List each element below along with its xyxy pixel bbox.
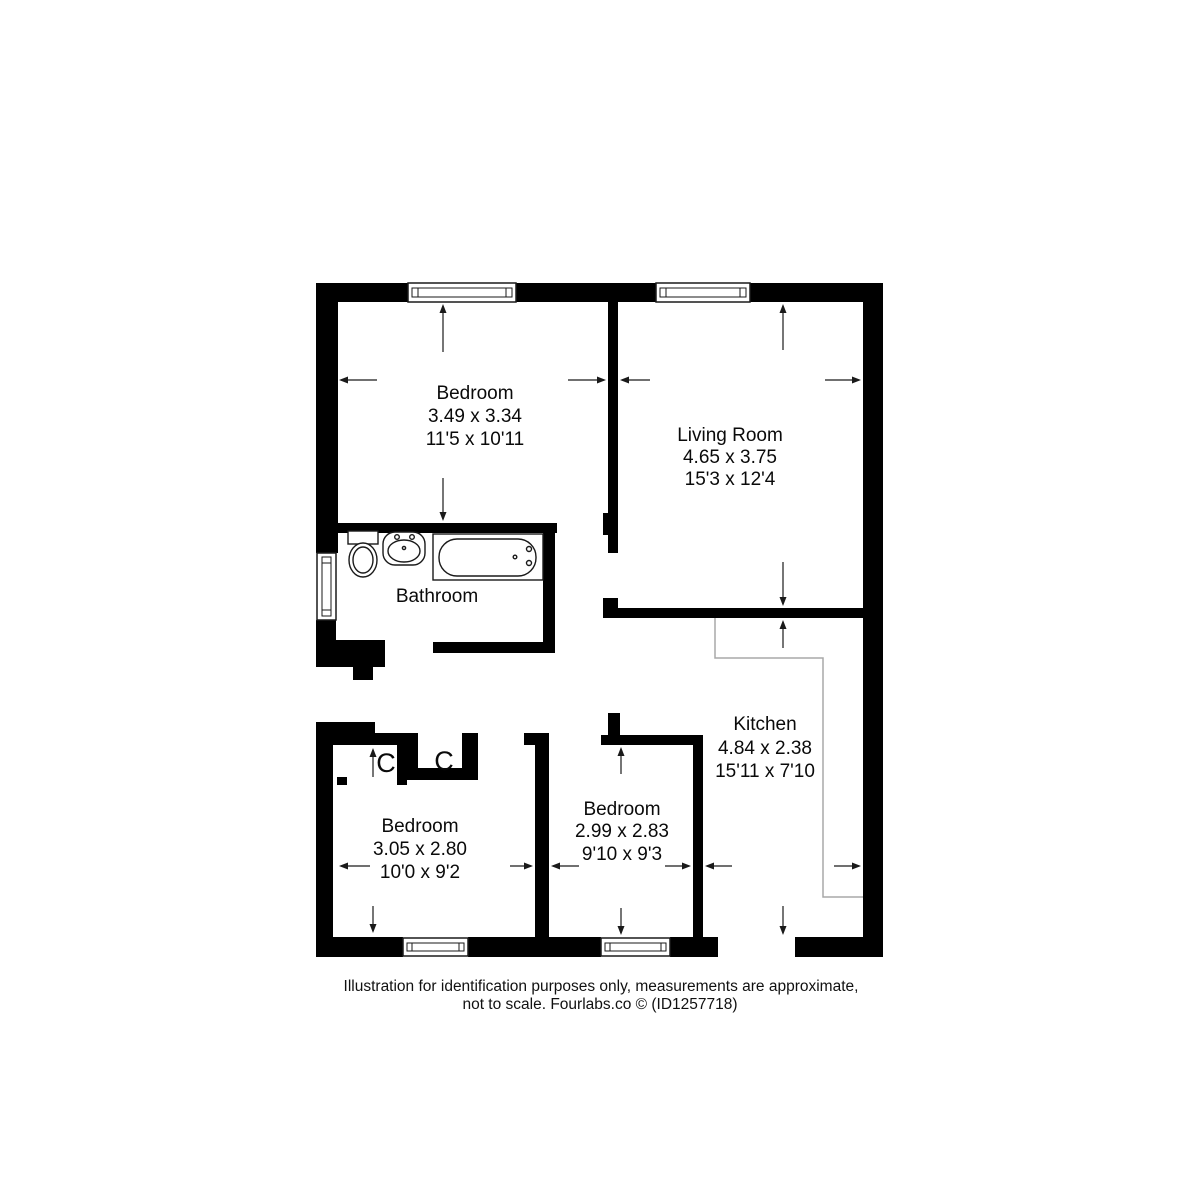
window-top-right <box>656 283 750 302</box>
kitchen-imperial: 15'11 x 7'10 <box>715 761 815 782</box>
wall-bottom-3 <box>670 937 718 957</box>
wall-right <box>863 283 883 957</box>
wall-bathroom-bottom <box>433 642 553 653</box>
bedroom-left-name: Bedroom <box>381 816 458 837</box>
wall-closet-top <box>316 733 418 745</box>
wall-step-block <box>353 667 373 680</box>
wall-bottom-4 <box>795 937 863 957</box>
living-room-name: Living Room <box>677 425 783 446</box>
kitchen-name: Kitchen <box>733 714 796 735</box>
sink-icon <box>383 532 425 565</box>
bathtub-icon <box>433 534 543 580</box>
bedroom-middle-name: Bedroom <box>583 799 660 820</box>
wall-closet-left-right <box>397 745 407 785</box>
window-top-left <box>408 283 516 302</box>
wall-mid-bedrooms <box>535 745 549 937</box>
closet-right-label: C <box>434 746 454 776</box>
wall-kitchen-top <box>603 608 863 618</box>
window-bottom-middle <box>601 938 670 956</box>
bathroom-name: Bathroom <box>396 586 478 607</box>
closet-left-label: C <box>376 748 396 778</box>
wall-left-upper <box>316 283 338 523</box>
living-room-imperial: 15'3 x 12'4 <box>685 469 776 490</box>
living-room-metric: 4.65 x 3.75 <box>683 447 777 468</box>
wall-mid-bedrooms-cap <box>524 733 549 745</box>
footer-line-1: Illustration for identification purposes… <box>344 978 859 995</box>
wall-bed2-top-stub <box>608 713 620 735</box>
wall-bottom-2 <box>468 937 601 957</box>
bedroom-left-imperial: 10'0 x 9'2 <box>380 862 460 883</box>
bedroom-top-metric: 3.49 x 3.34 <box>428 406 522 427</box>
window-bottom-left <box>403 938 468 956</box>
wall-left-lower <box>316 733 333 957</box>
floor-plan: Bedroom 3.49 x 3.34 11'5 x 10'11 Living … <box>0 0 1200 1200</box>
wall-top-middle <box>516 283 656 302</box>
background <box>0 0 1200 1200</box>
window-bathroom <box>317 553 336 620</box>
bedroom-top-imperial: 11'5 x 10'11 <box>426 429 524 450</box>
wall-divider-bump <box>603 513 618 535</box>
wall-closet-left-stub <box>337 777 347 785</box>
wall-bed2-right <box>693 735 703 937</box>
wall-bathroom-right <box>543 523 555 653</box>
kitchen-metric: 4.84 x 2.38 <box>718 738 812 759</box>
bedroom-middle-metric: 2.99 x 2.83 <box>575 821 669 842</box>
floor-plan-page: Bedroom 3.49 x 3.34 11'5 x 10'11 Living … <box>0 0 1200 1200</box>
wall-left-lower-cap <box>316 722 375 733</box>
footer-line-2: not to scale. Fourlabs.co © (ID1257718) <box>462 996 737 1013</box>
toilet-icon <box>348 531 378 577</box>
bedroom-top-name: Bedroom <box>436 383 513 404</box>
wall-step-horizontal <box>316 640 385 667</box>
bedroom-middle-imperial: 9'10 x 9'3 <box>582 844 662 865</box>
wall-bed2-top <box>601 735 703 745</box>
bedroom-left-metric: 3.05 x 2.80 <box>373 839 467 860</box>
